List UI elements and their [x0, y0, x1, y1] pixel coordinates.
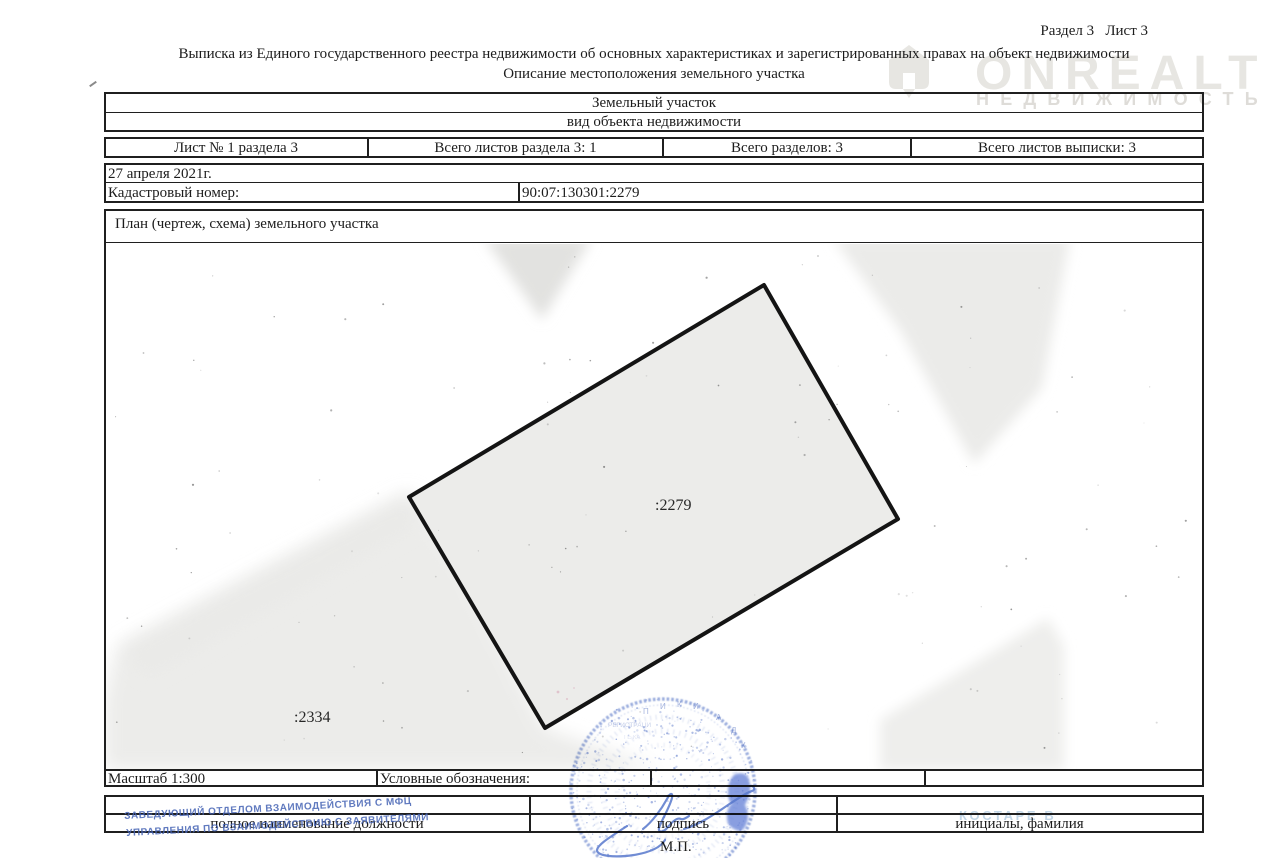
svg-text:Д: Д: [731, 726, 737, 735]
svg-text:ГЕ КА: ГЕ КА: [624, 735, 640, 741]
svg-text:И: И: [660, 702, 666, 711]
svg-text:П: П: [643, 707, 649, 716]
svg-text:И: И: [693, 702, 699, 711]
